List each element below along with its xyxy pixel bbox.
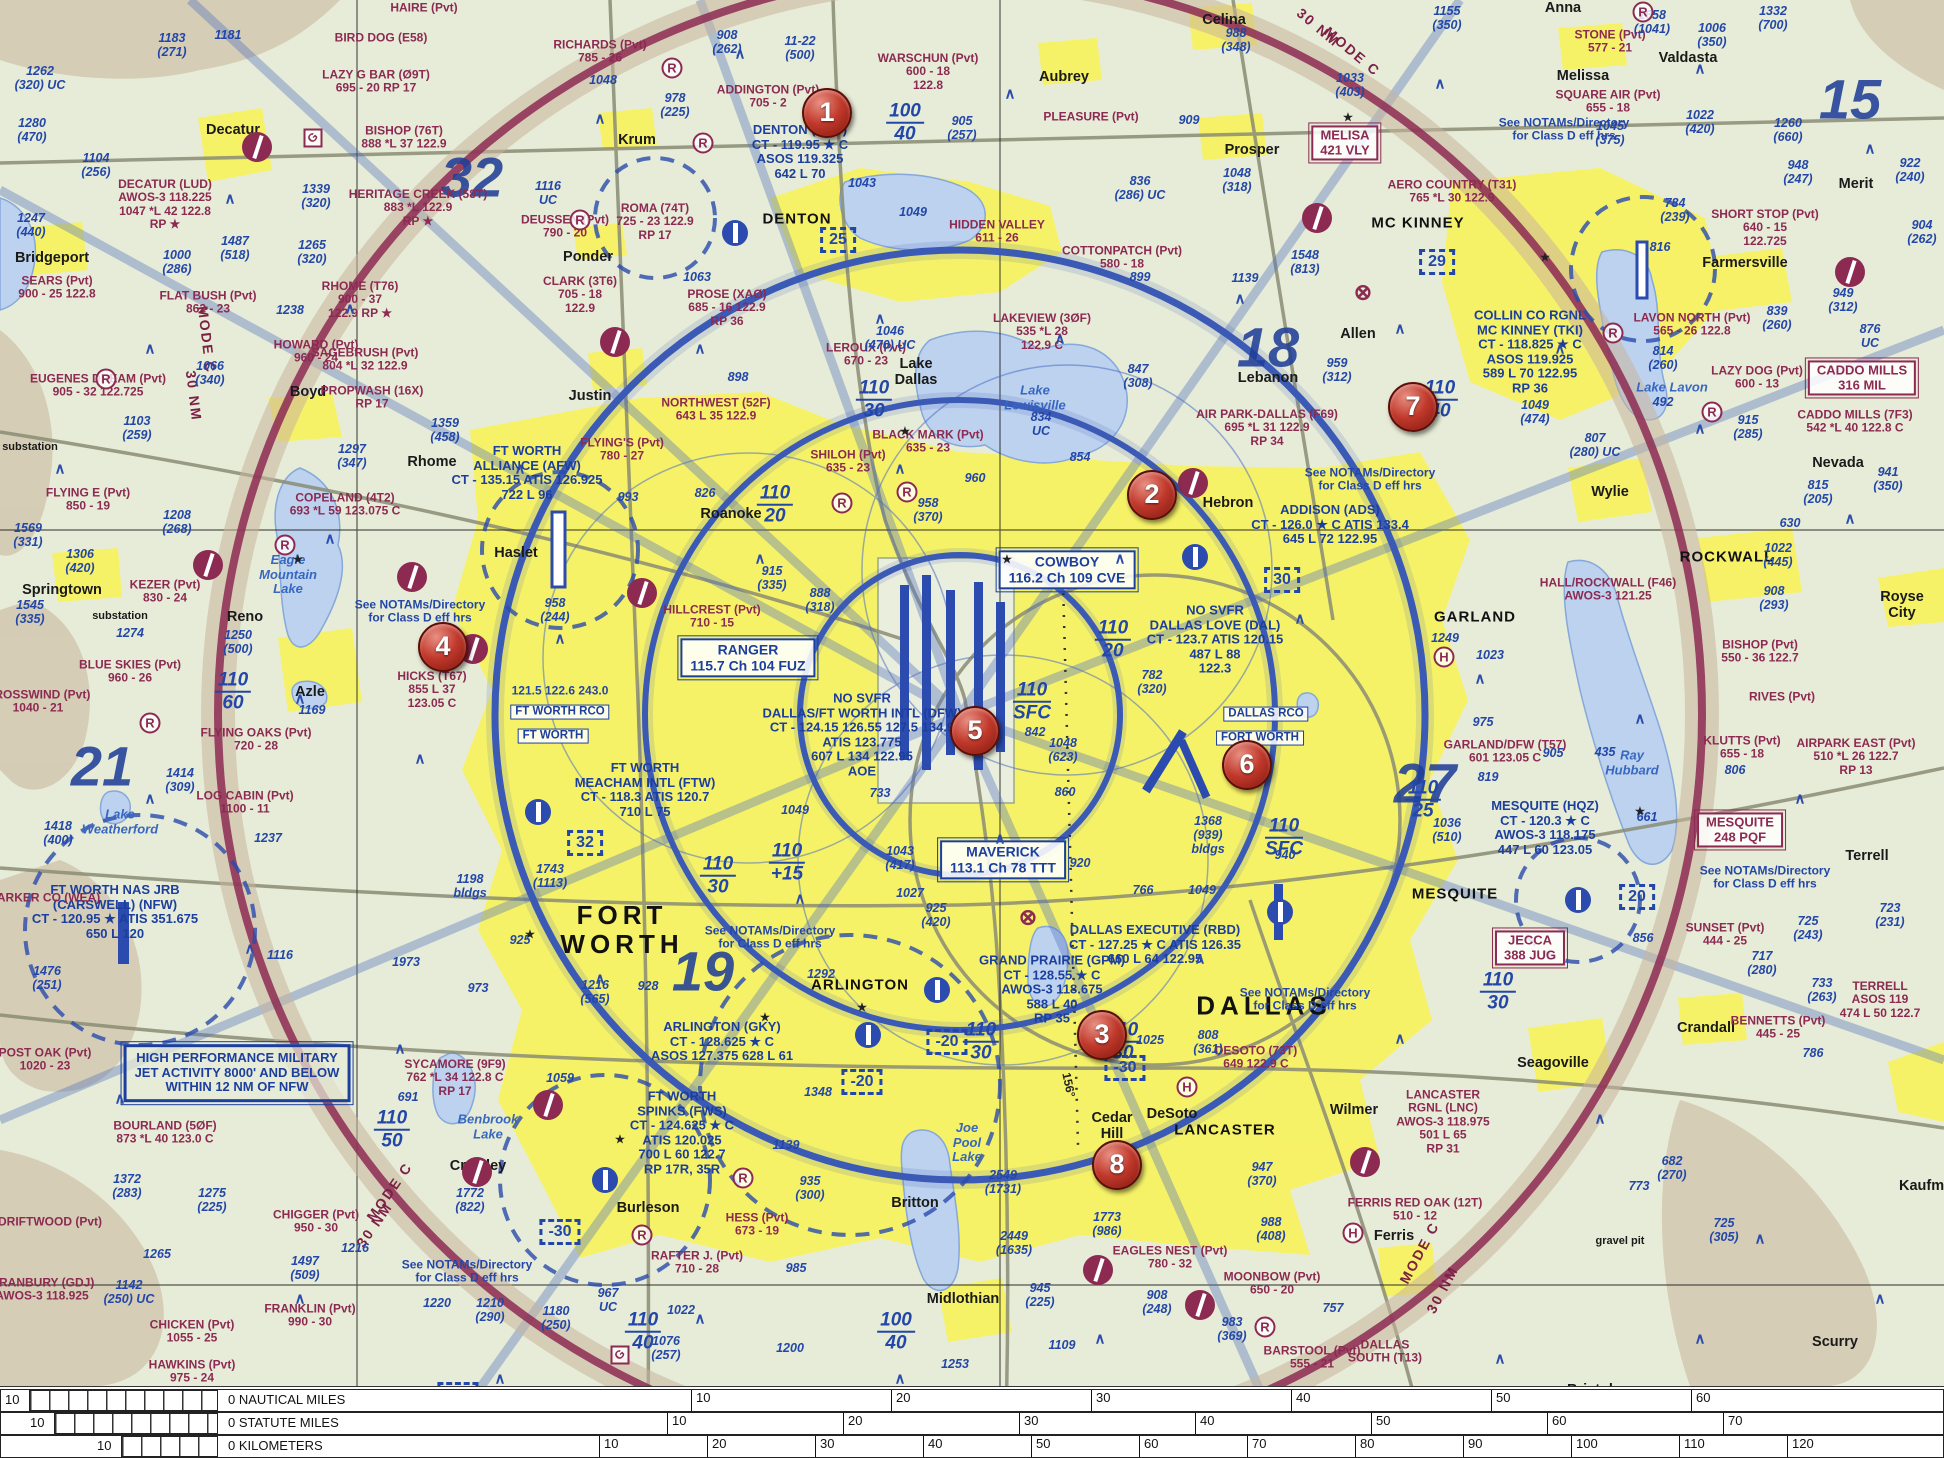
quiz-marker-6[interactable]: 6 xyxy=(1222,740,1272,790)
quiz-markers: 12345678 xyxy=(0,0,1944,1458)
sectional-chart: 321518192127FORTWORTHDALLASDENTONMC KINN… xyxy=(0,0,1944,1458)
quiz-marker-4[interactable]: 4 xyxy=(418,622,468,672)
quiz-marker-2[interactable]: 2 xyxy=(1127,470,1177,520)
quiz-marker-8[interactable]: 8 xyxy=(1092,1140,1142,1190)
quiz-marker-3[interactable]: 3 xyxy=(1077,1010,1127,1060)
quiz-marker-7[interactable]: 7 xyxy=(1388,382,1438,432)
quiz-marker-5[interactable]: 5 xyxy=(950,706,1000,756)
quiz-marker-1[interactable]: 1 xyxy=(802,88,852,138)
